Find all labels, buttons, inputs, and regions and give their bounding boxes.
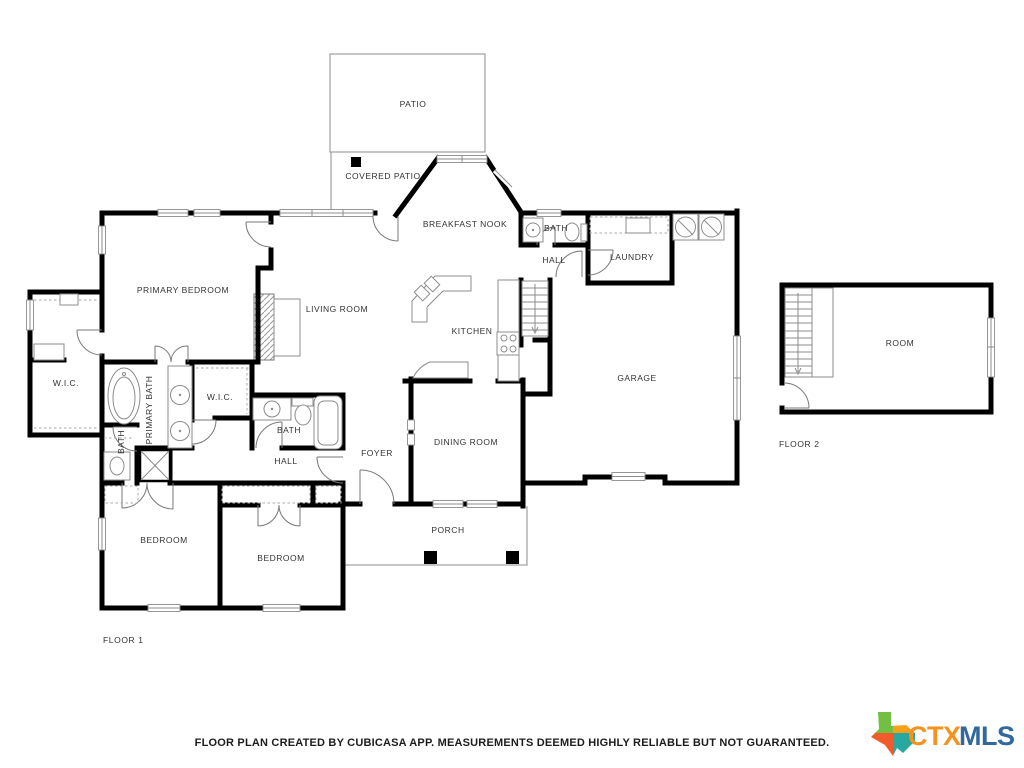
shower — [140, 450, 170, 481]
staircase-floor2 — [785, 288, 833, 377]
patio-outline — [330, 54, 485, 209]
disclaimer-text: FLOOR PLAN CREATED BY CUBICASA APP. MEAS… — [195, 737, 830, 749]
room-label-kitchen: KITCHEN — [452, 326, 493, 336]
room-label-living-room: LIVING ROOM — [306, 304, 368, 314]
room-label-bath-mid: BATH — [277, 425, 301, 435]
logo-ctx-text: CTX — [908, 721, 961, 751]
door-bedroom2-double — [258, 505, 300, 526]
floor1-label: FLOOR 1 — [103, 635, 144, 645]
floor2-plan: ROOM FLOOR 2 — [779, 285, 995, 449]
closet-rod — [316, 486, 341, 503]
porch-post — [424, 551, 437, 564]
room-label-primary-bath: PRIMARY BATH — [144, 376, 154, 445]
door-primary-bath-double — [155, 346, 188, 362]
ctxmls-logo: CTX MLS — [870, 710, 1015, 758]
door-bedroom1-double — [122, 483, 173, 509]
floor1-plan: PATIO COVERED PATIO BREAKFAST NOOK BATH … — [27, 54, 741, 645]
room-label-garage: GARAGE — [617, 373, 656, 383]
room-label-covered-patio: COVERED PATIO — [345, 171, 420, 181]
window — [988, 318, 995, 377]
labels-floor1: PATIO COVERED PATIO BREAKFAST NOOK BATH … — [53, 99, 657, 645]
kitchen-island — [413, 362, 468, 378]
walls-floor2 — [782, 285, 991, 412]
door-wic2 — [192, 420, 216, 444]
window — [99, 518, 106, 550]
room-label-dining-room: DINING ROOM — [434, 437, 498, 447]
window — [734, 336, 741, 420]
room-label-foyer: FOYER — [361, 448, 393, 458]
room-label-bath-small: BATH — [116, 430, 126, 454]
door-patio — [373, 216, 398, 241]
room-label-laundry: LAUNDRY — [610, 252, 654, 262]
room-label-primary-bedroom: PRIMARY BEDROOM — [137, 285, 229, 295]
room-label-wic-left: W.I.C. — [53, 378, 79, 388]
double-vanity — [168, 366, 192, 448]
dryer-icon — [699, 214, 724, 240]
room-label-breakfast-nook: BREAKFAST NOOK — [423, 219, 507, 229]
floor-plan-canvas: PATIO COVERED PATIO BREAKFAST NOOK BATH … — [0, 0, 1024, 768]
window — [148, 605, 180, 612]
window — [467, 501, 497, 508]
door-wic — [77, 330, 102, 355]
room-label-hall-top: HALL — [542, 255, 565, 265]
door-front — [360, 470, 394, 504]
room-label-bedroom-right: BEDROOM — [257, 553, 304, 563]
room-label-patio: PATIO — [400, 99, 427, 109]
window — [27, 300, 34, 330]
washer-icon — [673, 214, 698, 240]
closet-rod — [222, 486, 310, 503]
patio-post — [351, 157, 361, 167]
porch-outline — [345, 506, 527, 565]
bathtub-oval — [108, 368, 140, 424]
window — [99, 226, 106, 254]
hall-bath-fixtures — [253, 396, 342, 449]
door-floor2 — [784, 383, 809, 408]
room-label-room: ROOM — [886, 338, 914, 348]
window — [158, 210, 188, 217]
cased-opening — [408, 434, 415, 445]
window — [537, 210, 561, 217]
room-label-bath-top: BATH — [544, 223, 568, 233]
window — [263, 605, 300, 612]
garage-door — [612, 473, 645, 481]
window — [194, 210, 220, 217]
window — [433, 501, 463, 508]
stove — [497, 332, 519, 355]
kitchen-counter-right — [498, 280, 519, 381]
window-bay — [437, 156, 487, 163]
door-hall-foyer — [317, 457, 343, 483]
staircase-floor1 — [522, 281, 548, 336]
window — [280, 210, 373, 217]
room-label-porch: PORCH — [431, 525, 464, 535]
logo-mls-text: MLS — [959, 721, 1015, 751]
laundry-counter — [590, 217, 668, 233]
fireplace — [254, 294, 300, 360]
room-label-bedroom-left: BEDROOM — [140, 535, 187, 545]
room-label-hall-mid: HALL — [274, 456, 297, 466]
floor2-label: FLOOR 2 — [779, 439, 820, 449]
door-primary-bedroom — [246, 222, 271, 247]
room-label-wic-right: W.I.C. — [207, 392, 233, 402]
porch-post — [506, 551, 519, 564]
closet-shelves — [196, 368, 250, 414]
kitchen-counter — [412, 276, 471, 322]
cased-opening — [408, 420, 415, 430]
